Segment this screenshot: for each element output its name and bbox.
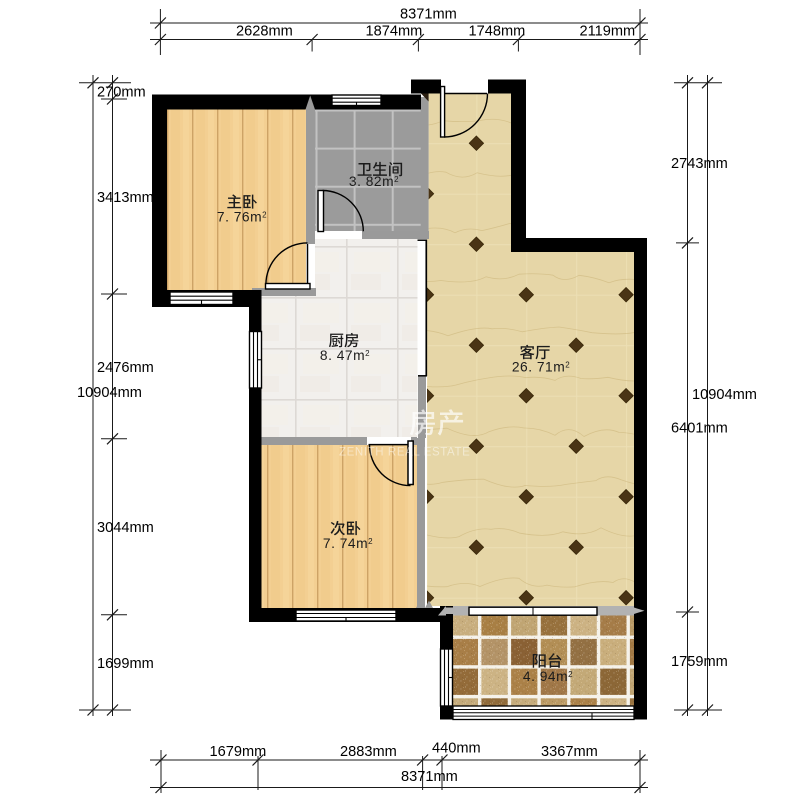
svg-text:8. 47m2: 8. 47m2: [320, 348, 370, 363]
svg-text:270mm: 270mm: [97, 84, 146, 100]
svg-text:3367mm: 3367mm: [541, 744, 598, 760]
svg-text:2119mm: 2119mm: [580, 24, 636, 40]
svg-text:1679mm: 1679mm: [210, 744, 267, 760]
svg-text:1874mm: 1874mm: [366, 24, 423, 40]
svg-text:2476mm: 2476mm: [97, 360, 154, 376]
svg-text:1748mm: 1748mm: [469, 24, 526, 40]
svg-text:8371mm: 8371mm: [400, 7, 457, 23]
svg-text:7. 74m2: 7. 74m2: [323, 536, 373, 551]
svg-text:3413mm: 3413mm: [97, 190, 154, 206]
svg-text:2628mm: 2628mm: [236, 24, 293, 40]
svg-text:1759mm: 1759mm: [671, 654, 728, 670]
svg-text:ZENITH REAL ESTATE: ZENITH REAL ESTATE: [339, 447, 470, 459]
svg-text:1699mm: 1699mm: [97, 656, 154, 672]
svg-text:3044mm: 3044mm: [97, 520, 154, 536]
svg-text:3. 82m2: 3. 82m2: [349, 174, 399, 189]
svg-text:2883mm: 2883mm: [340, 744, 397, 760]
svg-text:10904mm: 10904mm: [77, 385, 142, 401]
svg-text:8371mm: 8371mm: [401, 769, 458, 785]
svg-text:6401mm: 6401mm: [671, 421, 728, 437]
svg-text:10904mm: 10904mm: [692, 387, 757, 403]
svg-text:7. 76m2: 7. 76m2: [217, 210, 267, 225]
svg-text:440mm: 440mm: [432, 741, 481, 757]
svg-text:26. 71m2: 26. 71m2: [512, 360, 570, 375]
svg-text:4. 94m2: 4. 94m2: [523, 669, 573, 684]
svg-text:2743mm: 2743mm: [671, 156, 728, 172]
